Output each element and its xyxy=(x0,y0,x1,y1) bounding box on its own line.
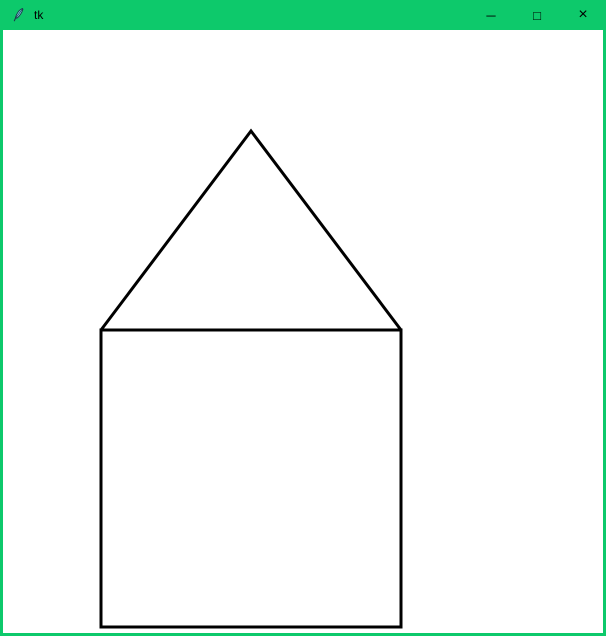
close-icon: × xyxy=(578,7,587,23)
tk-feather-icon xyxy=(10,7,26,23)
house-body-square xyxy=(101,330,401,627)
drawing-canvas xyxy=(3,30,603,633)
close-button[interactable]: × xyxy=(560,0,606,30)
canvas-svg xyxy=(3,30,603,633)
house-roof-triangle xyxy=(101,131,401,330)
minimize-icon: ─ xyxy=(486,9,495,22)
maximize-button[interactable]: □ xyxy=(514,0,560,30)
window-title: tk xyxy=(34,0,43,30)
maximize-icon: □ xyxy=(533,9,541,22)
minimize-button[interactable]: ─ xyxy=(468,0,514,30)
titlebar[interactable]: tk ─ □ × xyxy=(0,0,606,30)
tk-window: tk ─ □ × xyxy=(0,0,606,636)
